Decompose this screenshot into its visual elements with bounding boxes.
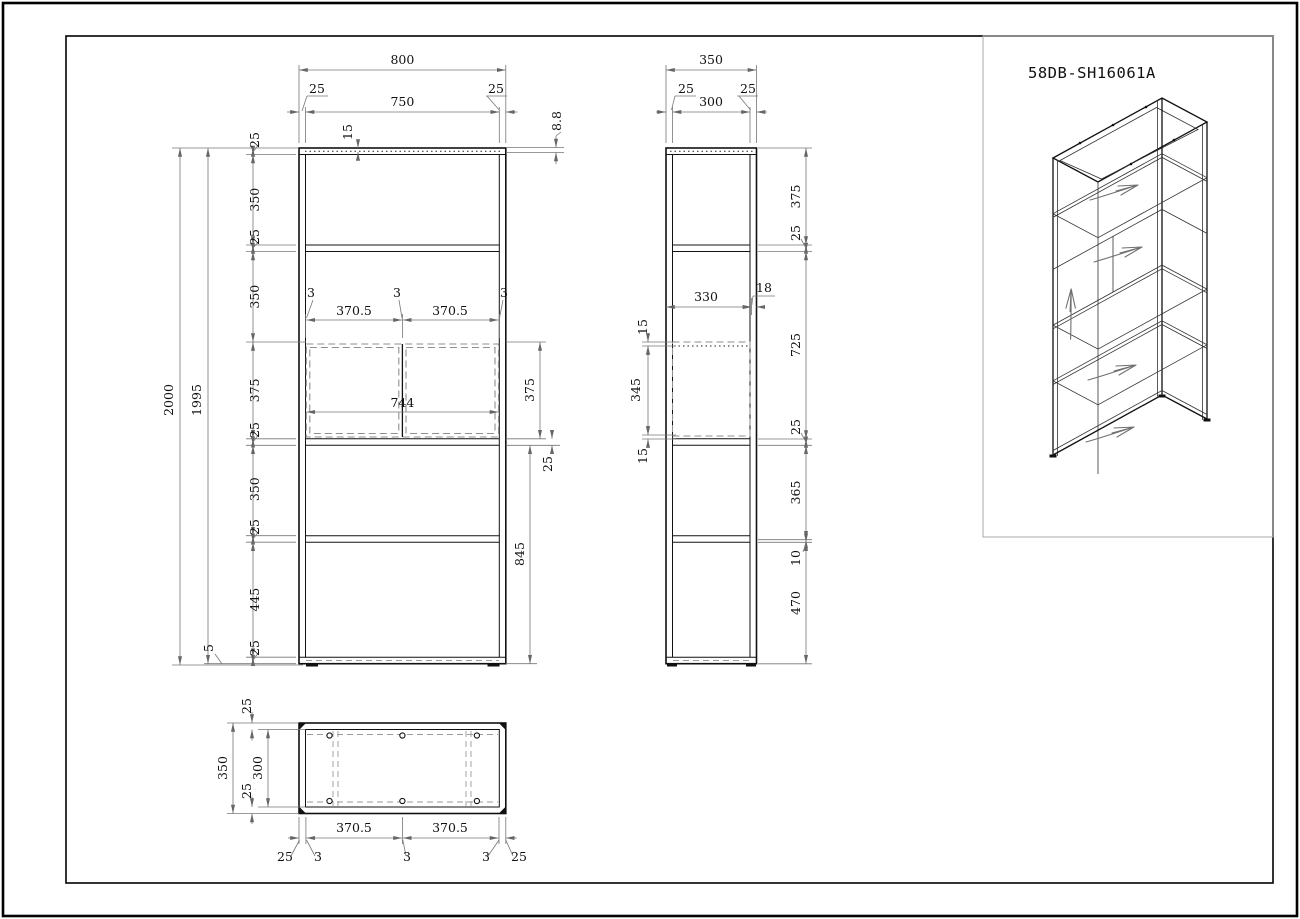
- dim-front-chain-25c: 25: [247, 422, 262, 438]
- dim-side-18: 18: [756, 280, 772, 295]
- dim-front-25-shelf: 25: [540, 456, 555, 472]
- dim-side-15-bottom: 15: [635, 448, 650, 464]
- dim-side-15-top: 15: [635, 319, 650, 335]
- dim-top-370.5-left: 370.5: [336, 820, 372, 835]
- screw-hole: [474, 798, 479, 803]
- dim-front-chain-25a: 25: [247, 132, 262, 148]
- dim-front-25-top-left: 25: [309, 81, 325, 96]
- dim-top-25-top: 25: [239, 698, 254, 714]
- dim-front-15: 15: [340, 124, 355, 140]
- dim-front-375-door: 375: [522, 378, 537, 402]
- dim-front-1995: 1995: [189, 384, 204, 416]
- dim-top-25-right: 25: [511, 849, 527, 864]
- dim-front-2000: 2000: [161, 384, 176, 416]
- dim-front-chain-350b: 350: [247, 285, 262, 309]
- screw-hole: [327, 798, 332, 803]
- dim-front-chain-375: 375: [247, 378, 262, 402]
- dim-top-3-mid: 3: [403, 849, 411, 864]
- dim-front-chain-350a: 350: [247, 188, 262, 212]
- dim-front-chain-350c: 350: [247, 477, 262, 501]
- dim-front-744: 744: [390, 395, 414, 410]
- dim-front-370.5-left: 370.5: [336, 303, 372, 318]
- dim-front-5: 5: [201, 644, 216, 652]
- dim-top-3-left: 3: [314, 849, 322, 864]
- screw-hole: [400, 733, 405, 738]
- screw-hole: [327, 733, 332, 738]
- dim-side-chain-10: 10: [788, 550, 803, 566]
- dim-side-350: 350: [699, 52, 723, 67]
- dim-side-chain-725: 725: [788, 333, 803, 357]
- dim-side-chain-470: 470: [788, 591, 803, 615]
- dim-front-750: 750: [390, 94, 414, 109]
- dim-front-chain-25b: 25: [247, 229, 262, 245]
- drawing-sheet: 800 750 25 25 15 8.8: [0, 0, 1300, 919]
- dim-top-25-bottom: 25: [239, 783, 254, 799]
- front-foot-right: [488, 664, 500, 667]
- dim-front-3-right: 3: [500, 285, 508, 300]
- dim-front-8.8: 8.8: [549, 111, 564, 131]
- cad-drawing: 800 750 25 25 15 8.8: [0, 0, 1300, 919]
- screw-hole: [474, 733, 479, 738]
- dim-top-3-right: 3: [482, 849, 490, 864]
- dim-front-chain-25e: 25: [247, 640, 262, 656]
- side-foot-right: [746, 664, 756, 667]
- dim-side-chain-365: 365: [788, 481, 803, 505]
- dim-side-25-right: 25: [740, 81, 756, 96]
- dim-front-chain-445: 445: [247, 588, 262, 612]
- dim-side-chain-25b: 25: [788, 419, 803, 435]
- dim-side-25-left: 25: [678, 81, 694, 96]
- dim-side-300: 300: [699, 94, 723, 109]
- dim-front-845: 845: [512, 542, 527, 566]
- part-number: 58DB-SH16061A: [1028, 64, 1156, 82]
- dim-side-chain-375: 375: [788, 185, 803, 209]
- dim-side-330: 330: [694, 289, 718, 304]
- dim-front-370.5-right: 370.5: [432, 303, 468, 318]
- dim-side-chain-25a: 25: [788, 225, 803, 241]
- dim-front-800: 800: [390, 52, 414, 67]
- dim-side-345: 345: [628, 378, 643, 402]
- dim-front-25-top-right: 25: [488, 81, 504, 96]
- sheet-border: [3, 3, 1297, 916]
- dim-front-3-mid: 3: [393, 285, 401, 300]
- side-foot-left: [667, 664, 677, 667]
- dim-top-370.5-right: 370.5: [432, 820, 468, 835]
- dim-front-3-left: 3: [307, 285, 315, 300]
- front-foot-left: [306, 664, 318, 667]
- dim-top-300: 300: [250, 756, 265, 780]
- screw-hole: [400, 798, 405, 803]
- dim-front-chain-25d: 25: [247, 519, 262, 535]
- dim-top-25-left: 25: [277, 849, 293, 864]
- dim-top-350: 350: [215, 756, 230, 780]
